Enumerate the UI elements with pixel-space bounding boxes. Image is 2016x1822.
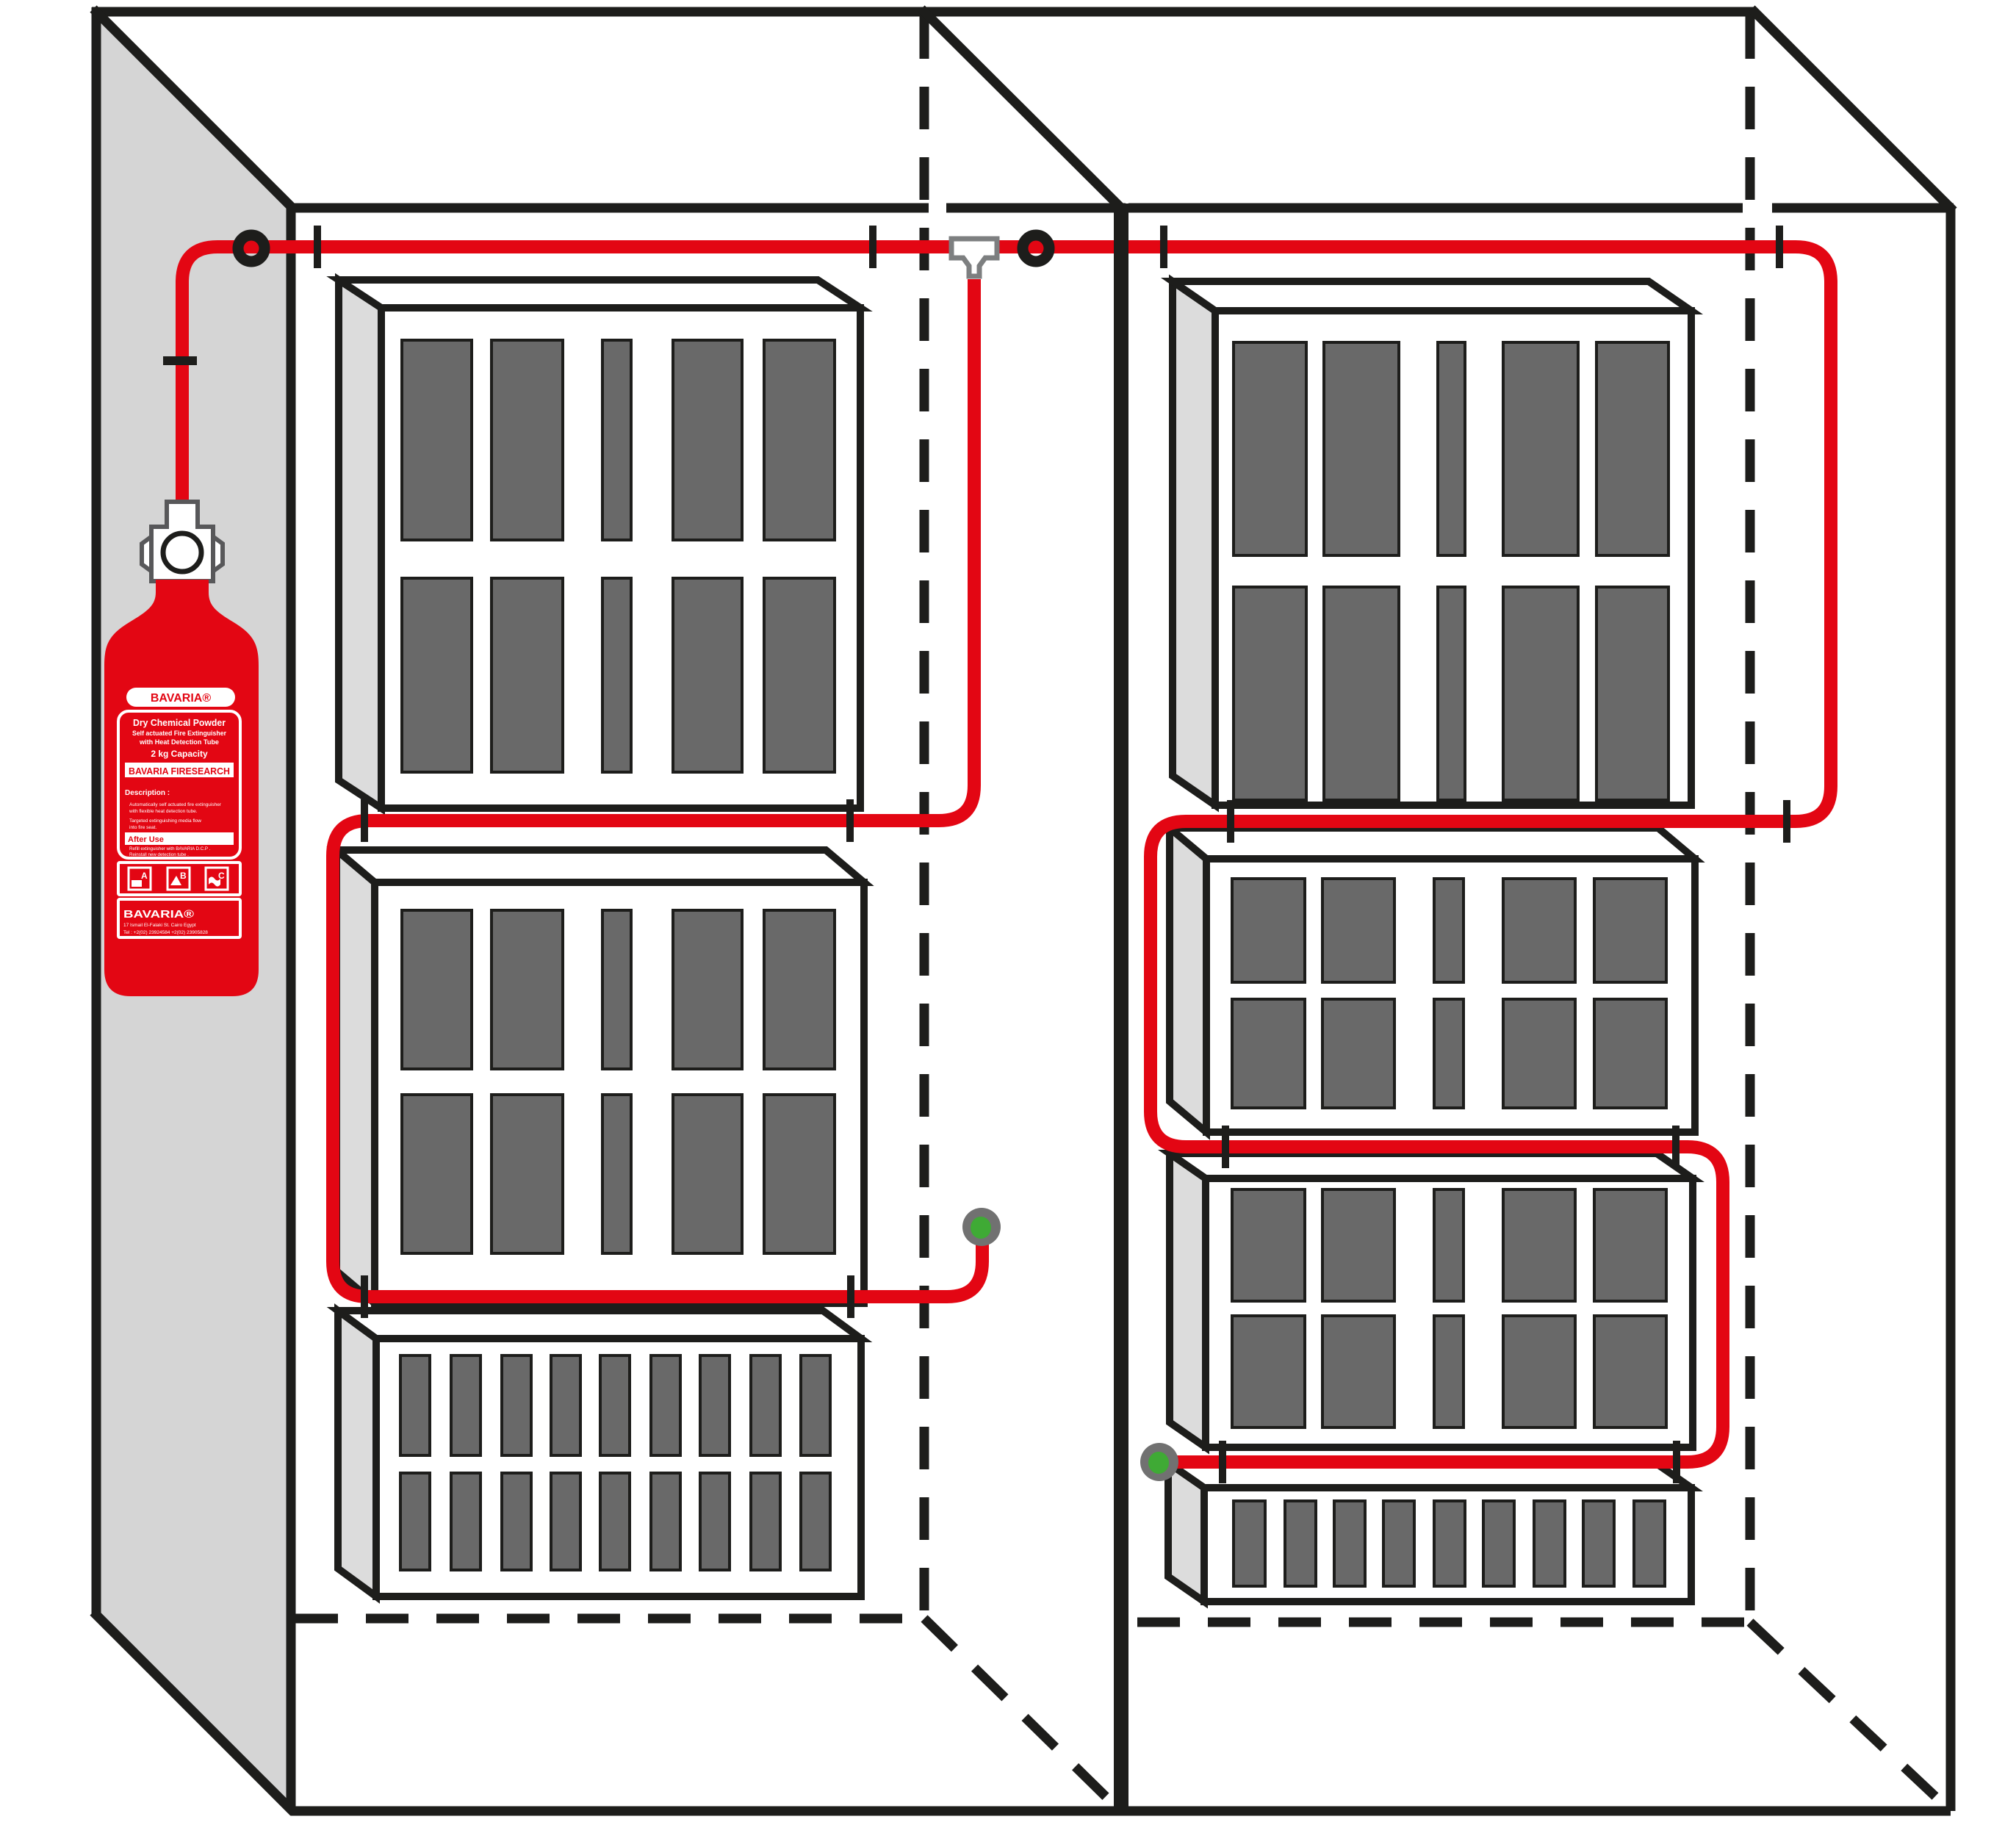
svg-text:Reinstall new detection tube .: Reinstall new detection tube . — [129, 852, 189, 857]
svg-text:Refill extinguisher with BAVAR: Refill extinguisher with BAVARIA D.C.P . — [129, 846, 211, 851]
svg-text:into fire seat.: into fire seat. — [129, 825, 156, 830]
svg-text:Tel : +2(02) 23924584 +2(02) 2: Tel : +2(02) 23924584 +2(02) 23905828 — [123, 930, 208, 935]
svg-text:Dry Chemical Powder: Dry Chemical Powder — [133, 718, 226, 728]
svg-text:17 Ismail El-Falaki St. Cairo: 17 Ismail El-Falaki St. Cairo Egypt — [123, 923, 196, 928]
svg-text:C: C — [218, 871, 225, 881]
svg-text:Targeted extinguishing media f: Targeted extinguishing media flow — [129, 818, 201, 824]
svg-text:Automatically self actuated fi: Automatically self actuated fire extingu… — [129, 802, 222, 807]
svg-text:with Heat Detection Tube: with Heat Detection Tube — [139, 738, 219, 746]
svg-text:BAVARIA®: BAVARIA® — [151, 692, 212, 705]
svg-text:2 kg Capacity: 2 kg Capacity — [151, 749, 208, 759]
svg-text:BAVARIA FIRESEARCH: BAVARIA FIRESEARCH — [129, 766, 230, 777]
svg-text:B: B — [180, 871, 187, 881]
svg-text:with flexible heat detection t: with flexible heat detection tube. — [129, 809, 198, 814]
svg-text:After Use: After Use — [128, 835, 164, 844]
svg-text:Self actuated Fire Extinguishe: Self actuated Fire Extinguisher — [132, 730, 226, 737]
svg-text:BAVARIA®: BAVARIA® — [123, 908, 194, 921]
svg-text:Description :: Description : — [125, 789, 170, 797]
svg-text:A: A — [141, 871, 148, 881]
